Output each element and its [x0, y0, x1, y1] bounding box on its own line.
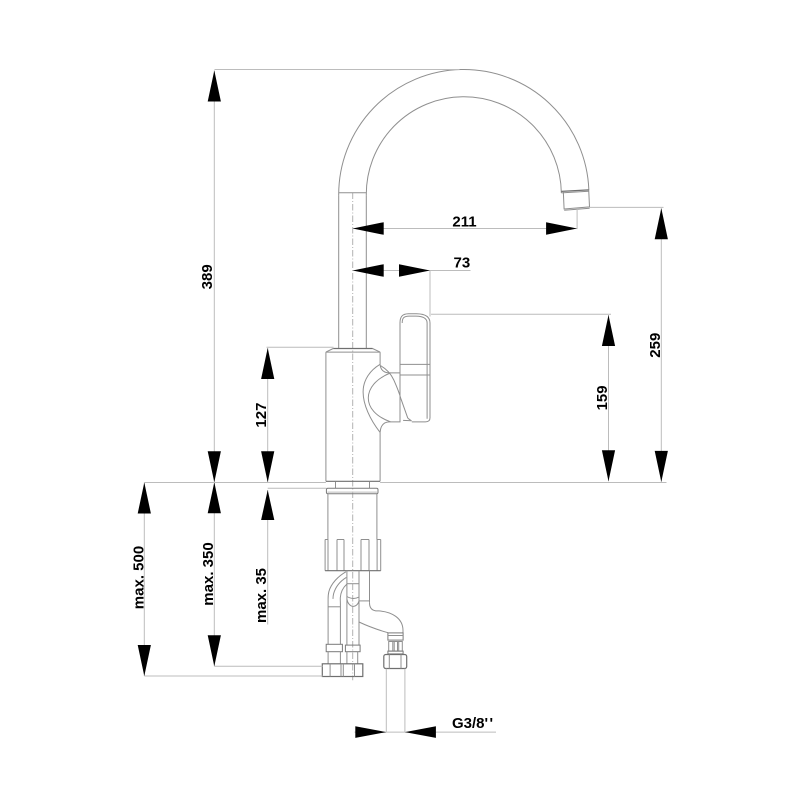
svg-text:211: 211	[452, 213, 476, 230]
svg-text:259: 259	[647, 333, 664, 358]
svg-text:127: 127	[253, 403, 270, 428]
svg-text:max. 35: max. 35	[253, 568, 270, 623]
svg-text:max. 500: max. 500	[131, 546, 148, 609]
svg-text:73: 73	[454, 255, 471, 272]
svg-text:159: 159	[594, 385, 611, 410]
svg-text:G3/8'': G3/8''	[452, 715, 493, 732]
svg-text:max. 350: max. 350	[200, 542, 217, 605]
svg-text:389: 389	[199, 264, 216, 289]
